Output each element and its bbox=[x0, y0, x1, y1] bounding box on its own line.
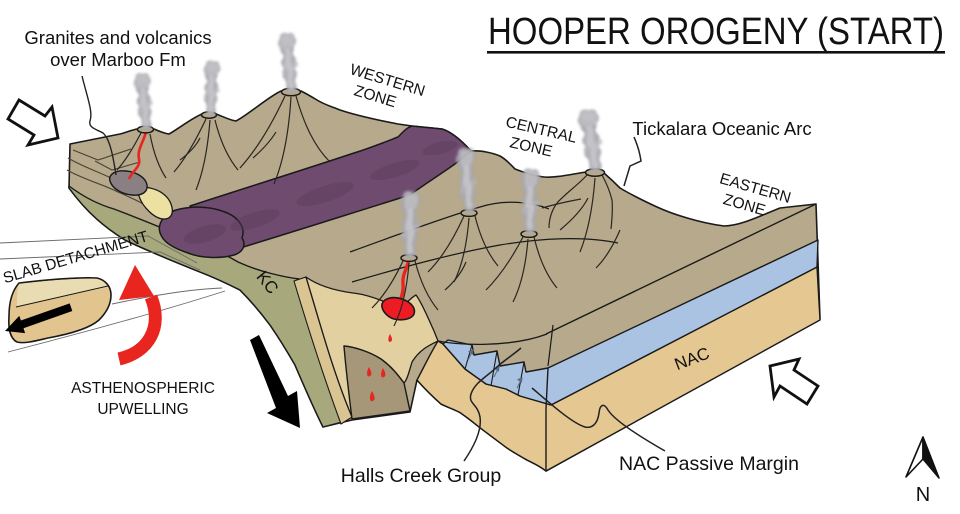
svg-text:NAC Passive Margin: NAC Passive Margin bbox=[619, 453, 799, 475]
svg-text:over Marboo Fm: over Marboo Fm bbox=[50, 49, 186, 70]
svg-text:Tickalara Oceanic Arc: Tickalara Oceanic Arc bbox=[632, 118, 811, 139]
svg-text:Halls Creek Group: Halls Creek Group bbox=[341, 465, 502, 487]
svg-text:UPWELLING: UPWELLING bbox=[97, 401, 188, 418]
svg-text:Granites and volcanics: Granites and volcanics bbox=[24, 27, 211, 48]
svg-text:N: N bbox=[916, 484, 930, 506]
svg-text:HOOPER OROGENY (START): HOOPER OROGENY (START) bbox=[488, 11, 944, 53]
svg-text:ASTHENOSPHERIC: ASTHENOSPHERIC bbox=[71, 380, 215, 397]
